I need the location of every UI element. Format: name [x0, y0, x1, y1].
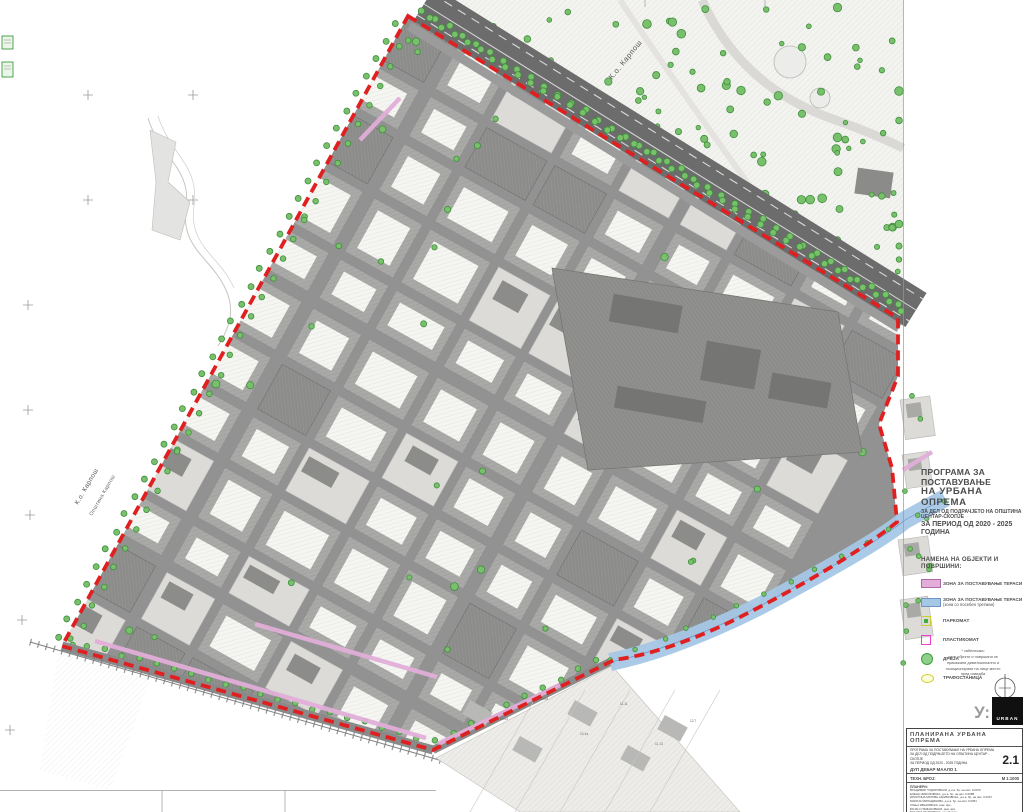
sheet-title: ПЛАНИРАНА УРБАНА ОПРЕМА: [907, 729, 1022, 747]
site-plan-map: 10.4410.2810.1а11.1111.1312.7 К.о. Карпо…: [0, 0, 1024, 812]
title-block: У: URBAN ПЛАНИРАНА УРБАНА ОПРЕМА ПРОГРАМ…: [906, 697, 1023, 812]
plastikomat-icon: [921, 635, 943, 645]
terrace-zone-special-swatch: [921, 598, 943, 607]
legend-label: ПАРКОМАТ: [943, 618, 969, 624]
plan-ref: ДУП ДЕБАР МААЛО 1: [910, 767, 995, 772]
plan-title-line2: НА УРБАНА ОПРЕМА: [921, 487, 1023, 508]
legend-label: ЗОНА ЗА ПОСТАВУВАЊЕ ТЕРАСИ: [943, 581, 1022, 587]
parkomat-icon: [921, 616, 943, 626]
legend-item-parkomat: ПАРКОМАТ: [921, 616, 1023, 626]
parcel-label: 12.7: [690, 719, 696, 723]
legend-label: ПЛАСТИКОМАТ: [943, 637, 979, 643]
terrace-zone-swatch: [921, 579, 943, 588]
plan-sheet: { "doc": { "title_lines": [ "ПРОГРАМА ЗА…: [0, 0, 1024, 812]
legend-item-terrace-zone-special: ЗОНА ЗА ПОСТАВУВАЊЕ ТЕРАСИ(зона со посеб…: [921, 597, 1023, 608]
urban-logo-text: URBAN: [992, 715, 1023, 722]
parcel-label: 11.13: [655, 742, 663, 746]
tech-number-label: ТЕХН. БРОЈ:: [910, 776, 936, 781]
legend-heading: НАМЕНА НА ОБЈЕКТИ И ПОВРШИНИ:: [921, 556, 1023, 570]
plan-title-line1: ПРОГРАМА ЗА ПОСТАВУВАЊЕ: [921, 468, 1023, 487]
plan-title-line4: ЗА ПЕРИОД ОД 2020 - 2025 ГОДИНА: [921, 521, 1023, 536]
program-line: ЗА ПЕРИОД ОД 2020 - 2025 ГОДИНА: [910, 761, 995, 765]
logo-prefix: У:: [974, 703, 990, 723]
plan-title: ПРОГРАМА ЗА ПОСТАВУВАЊЕ НА УРБАНА ОПРЕМА…: [921, 468, 1023, 537]
sheet-number: 2.1: [995, 748, 1019, 772]
scale-row: ТЕХН. БРОЈ: М 1:1000: [907, 774, 1022, 783]
scale-value: М 1:1000: [1002, 776, 1019, 781]
note-line: пред изведба: [928, 671, 1018, 677]
legend-item-plastikomat: ПЛАСТИКОМАТ: [921, 635, 1023, 645]
program-row: ПРОГРАМА ЗА ПОСТАВУВАЊЕ НА УРБАНА ОПРЕМА…: [907, 747, 1022, 774]
logo-row: У: URBAN: [906, 697, 1023, 728]
parcel-label: 11.11: [620, 702, 628, 706]
legend-label: ЗОНА ЗА ПОСТАВУВАЊЕ ТЕРАСИ(зона со посеб…: [943, 597, 1022, 608]
parcel-label: 10.1а: [580, 732, 588, 736]
legend-item-terrace-zone: ЗОНА ЗА ПОСТАВУВАЊЕ ТЕРАСИ: [921, 579, 1023, 588]
program-line: ЗА ДЕЛ ОД ПОДРАЧЈЕТО НА ОПШТИНА ЦЕНТАР -…: [910, 752, 995, 761]
planners-row: ПЛАНЕРИ: ВЛАДИМИР ТОДОРОВСКИ, д.и.а. бр.…: [907, 783, 1022, 812]
legend-note: * забелешка: сите објекти и површини се …: [928, 648, 1018, 677]
parcel-label: 10.44: [500, 717, 508, 721]
plan-title-line3: ЗА ДЕЛ ОД ПОДРАЧЈЕТО НА ОПШТИНА ЦЕНТАР-С…: [921, 510, 1023, 521]
urban-logo: URBAN: [992, 697, 1023, 725]
title-block-table: ПЛАНИРАНА УРБАНА ОПРЕМА ПРОГРАМА ЗА ПОСТ…: [906, 728, 1023, 812]
